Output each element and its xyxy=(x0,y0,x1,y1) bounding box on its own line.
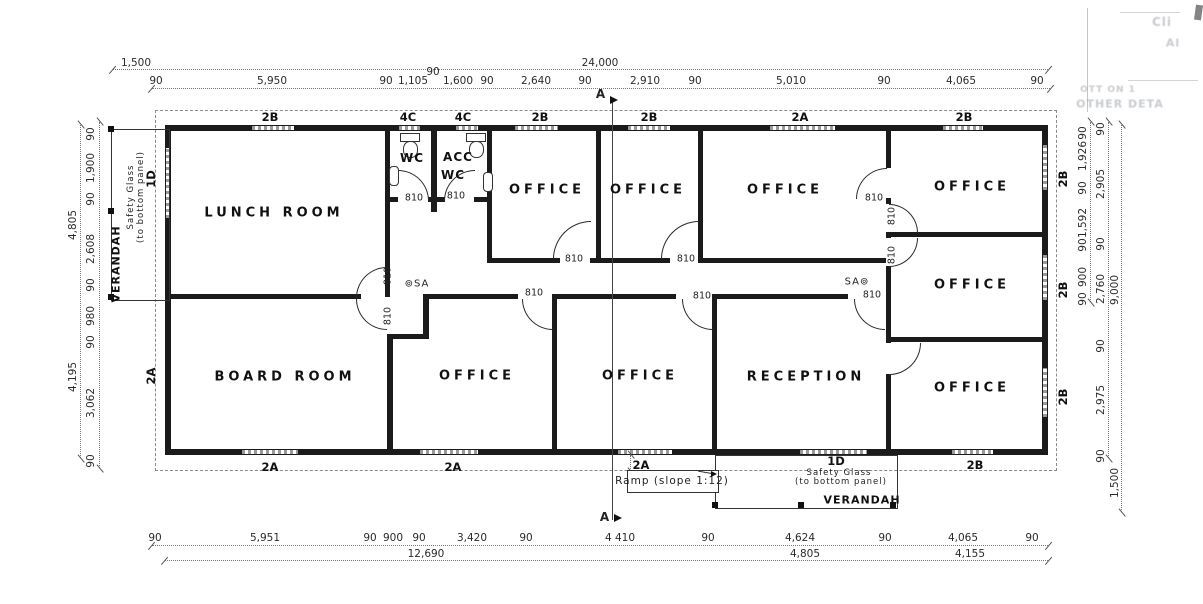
wall xyxy=(596,131,601,263)
door-size-label: 810 xyxy=(565,254,583,265)
bleed-through-text: Cli xyxy=(1152,15,1172,29)
dimension-label: 4,065 xyxy=(948,532,978,544)
dimension-label: 12,690 xyxy=(408,548,445,560)
corner-mark xyxy=(1194,5,1203,21)
window xyxy=(399,126,420,130)
dimension-label: 90 xyxy=(85,278,97,291)
dimension-label: 90 xyxy=(1077,238,1089,251)
wall xyxy=(886,266,891,343)
dimension-label: 90 xyxy=(1077,292,1089,305)
door-size-label: 810 xyxy=(383,267,394,285)
dimension-label: 90 xyxy=(1025,532,1038,544)
dimension-label: 900 xyxy=(1077,267,1089,287)
dim-line xyxy=(113,69,1048,70)
dimension-label: 90 xyxy=(426,66,439,78)
wall xyxy=(590,258,670,263)
room-label: RECEPTION xyxy=(747,370,865,385)
wall xyxy=(385,197,398,202)
wall-type-label: 1D xyxy=(144,170,158,188)
dimension-label: 2,608 xyxy=(85,234,97,264)
door-size-label: 810 xyxy=(887,207,898,225)
dimension-label: 90 xyxy=(85,335,97,348)
door-size-label: 810 xyxy=(887,246,898,264)
dimension-label: 90 xyxy=(85,127,97,140)
dim-line xyxy=(1121,125,1122,512)
dimension-label: 1,592 xyxy=(1077,208,1089,238)
bleed-through-line xyxy=(1120,12,1180,13)
wall xyxy=(428,197,445,202)
annotation: Ramp (slope 1:12) xyxy=(615,475,729,487)
dimension-label: 90 xyxy=(701,532,714,544)
wall xyxy=(487,258,560,263)
room-label: OFFICE xyxy=(747,183,823,198)
window xyxy=(252,126,294,130)
room-label: OFFICE xyxy=(509,183,585,198)
window xyxy=(1043,368,1047,417)
dimension-label: 9,000 xyxy=(1109,275,1121,305)
wall-type-label: 2B xyxy=(532,110,549,124)
bleed-through-text: OTT ON 1 xyxy=(1080,85,1136,95)
wall-type-label: 2B xyxy=(262,110,279,124)
dimension-label: 90 xyxy=(85,454,97,467)
window xyxy=(770,126,835,130)
wall-type-label: 2B xyxy=(641,110,658,124)
dimension-label: 1,900 xyxy=(85,153,97,183)
dim-line xyxy=(80,125,81,458)
window xyxy=(628,126,670,130)
window xyxy=(943,126,983,130)
dimension-label: 1,500 xyxy=(1109,468,1121,498)
annotation: ⊚SA xyxy=(405,279,430,290)
verandah-post xyxy=(108,208,114,214)
wall xyxy=(886,374,891,455)
dimension-label: 4,624 xyxy=(785,532,815,544)
dimension-label: 90 xyxy=(1077,181,1089,194)
wall xyxy=(387,334,393,455)
dimension-label: 2,760 xyxy=(1095,274,1107,304)
room-label: OFFICE xyxy=(934,381,1010,396)
door-size-label: 810 xyxy=(525,288,543,299)
dimension-label: 2,975 xyxy=(1095,385,1107,415)
dimension-label: 2,640 xyxy=(521,75,551,87)
dimension-label: 90 xyxy=(1095,122,1107,135)
window xyxy=(420,450,478,454)
wall-type-label: 2A xyxy=(633,458,650,472)
wall-type-label: 2B xyxy=(1056,171,1070,188)
room-label: VERANDAH xyxy=(110,225,123,302)
dimension-label: 90 xyxy=(85,192,97,205)
wall xyxy=(886,131,891,168)
dimension-label: 90 xyxy=(1095,339,1107,352)
window xyxy=(242,450,298,454)
wall xyxy=(429,294,518,299)
room-label: OFFICE xyxy=(934,278,1010,293)
dim-line xyxy=(152,545,1048,546)
wall-type-label: 2A xyxy=(445,460,462,474)
dim-line xyxy=(1090,122,1091,302)
annotation: SA⊚ xyxy=(845,277,870,288)
wall-type-label: 4C xyxy=(400,110,416,124)
window xyxy=(1043,255,1047,300)
page-fold-line xyxy=(1087,8,1088,112)
dimension-label: 5,010 xyxy=(776,75,806,87)
bleed-through-text: Al xyxy=(1166,37,1180,50)
dimension-label: 1,105 xyxy=(398,75,428,87)
eaves-outline xyxy=(155,110,1057,471)
wall-type-label: 2A xyxy=(262,460,279,474)
door-size-label: 810 xyxy=(693,291,711,302)
room-label: VERANDAH xyxy=(823,494,900,507)
dimension-label: 90 xyxy=(412,532,425,544)
wall xyxy=(698,258,886,263)
wall-type-label: 2B xyxy=(1056,282,1070,299)
wall-type-label: 2A xyxy=(144,368,158,385)
verandah-post xyxy=(712,502,718,508)
room-label: OFFICE xyxy=(610,183,686,198)
room-label: ACC xyxy=(443,150,473,164)
door-size-label: 810 xyxy=(405,193,423,204)
dimension-label: 980 xyxy=(85,306,97,326)
dimension-label: 2,910 xyxy=(630,75,660,87)
dimension-label: 1,500 xyxy=(121,57,151,69)
dimension-label: 90 xyxy=(877,75,890,87)
dimension-label: 90 xyxy=(1095,449,1107,462)
room-label: WC xyxy=(441,168,465,182)
dim-line xyxy=(99,122,100,468)
bleed-through-line xyxy=(1128,80,1198,81)
section-arrow-top xyxy=(610,96,618,104)
section-line xyxy=(612,100,613,520)
wall xyxy=(886,337,1047,342)
wall xyxy=(552,294,676,299)
dimension-label: 90 xyxy=(1077,126,1089,139)
wall-type-label: 2B xyxy=(967,458,984,472)
annotation: A xyxy=(596,87,606,101)
dimension-label: 2,905 xyxy=(1095,169,1107,199)
dimension-label: 90 xyxy=(379,75,392,87)
wall xyxy=(171,294,361,299)
dimension-label: 3,420 xyxy=(457,532,487,544)
door-size-label: 810 xyxy=(865,193,883,204)
wall xyxy=(387,334,429,339)
dimension-label: 5,951 xyxy=(250,532,280,544)
window xyxy=(456,126,478,130)
floorplan-canvas: 1,50024,000905,950901,105901,600902,6409… xyxy=(0,0,1203,604)
window xyxy=(952,450,993,454)
wall-type-label: 2B xyxy=(956,110,973,124)
wall-type-label: 2A xyxy=(792,110,809,124)
dimension-label: 24,000 xyxy=(582,57,619,69)
room-label: OFFICE xyxy=(439,369,515,384)
dimension-label: 4,805 xyxy=(790,548,820,560)
room-label: OFFICE xyxy=(934,180,1010,195)
dimension-label: 5,950 xyxy=(257,75,287,87)
room-label: BOARD ROOM xyxy=(214,370,355,385)
dimension-label: 4 410 xyxy=(605,532,635,544)
ramp-edge xyxy=(630,455,631,471)
verandah-post xyxy=(798,502,804,508)
annotation: Safety Glass xyxy=(126,165,136,230)
dimension-label: 3,062 xyxy=(85,388,97,418)
section-arrow-bottom xyxy=(614,514,622,522)
verandah-post xyxy=(108,126,114,132)
annotation: (to bottom panel) xyxy=(136,151,146,243)
room-label: LUNCH ROOM xyxy=(204,206,343,221)
dimension-label: 4,065 xyxy=(946,75,976,87)
dimension-label: 90 xyxy=(480,75,493,87)
door-size-label: 810 xyxy=(863,290,881,301)
annotation: A xyxy=(600,510,610,524)
wall xyxy=(423,294,429,338)
dimension-label: 4,155 xyxy=(955,548,985,560)
dimension-label: 90 xyxy=(1030,75,1043,87)
room-label: OFFICE xyxy=(602,369,678,384)
wall xyxy=(474,197,492,202)
dimension-label: 1,926 xyxy=(1077,141,1089,171)
basin xyxy=(389,166,399,186)
dimension-label: 90 xyxy=(148,532,161,544)
wall-top xyxy=(165,125,1048,131)
dimension-label: 90 xyxy=(519,532,532,544)
dimension-label: 90 xyxy=(688,75,701,87)
window xyxy=(515,126,558,130)
room-label: WC xyxy=(400,151,424,165)
dimension-label: 4,805 xyxy=(67,210,79,240)
dim-line xyxy=(165,560,1048,561)
wall-type-label: 2B xyxy=(1056,389,1070,406)
dimension-label: 90 xyxy=(363,532,376,544)
window xyxy=(1043,145,1047,190)
dimension-label: 1,600 xyxy=(443,75,473,87)
dimension-label: 90 xyxy=(578,75,591,87)
dimension-label: 90 xyxy=(1095,237,1107,250)
dimension-label: 90 xyxy=(878,532,891,544)
wall xyxy=(712,294,848,299)
wall-type-label: 1D xyxy=(827,454,845,468)
door-size-label: 810 xyxy=(677,254,695,265)
door-size-label: 810 xyxy=(383,307,394,325)
dimension-label: 4,195 xyxy=(67,362,79,392)
wall-type-label: 4C xyxy=(455,110,471,124)
basin xyxy=(483,172,493,192)
door-size-label: 810 xyxy=(447,191,465,202)
bleed-through-text: OTHER DETA xyxy=(1076,98,1164,111)
dimension-label: 900 xyxy=(383,532,403,544)
annotation: (to bottom panel) xyxy=(795,477,887,487)
dimension-label: 90 xyxy=(149,75,162,87)
